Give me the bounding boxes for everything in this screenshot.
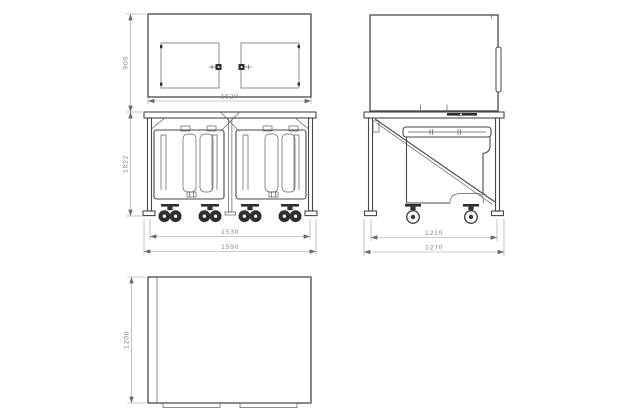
front-caster-1 (159, 204, 182, 222)
side-foot-right (492, 211, 504, 216)
technical-drawing: 900 1022 1520 1530 1590 (0, 0, 640, 420)
side-table-details (421, 105, 478, 116)
side-dim-caster-span: 1210 (371, 219, 497, 241)
front-door-right-latch-icon (239, 64, 252, 70)
drawing-canvas: 900 1022 1520 1530 1590 (0, 0, 640, 420)
plan-tab-right (240, 403, 297, 408)
front-center-post (225, 118, 236, 215)
plan-dim-depth: 1200 (123, 277, 147, 403)
side-caster-front (405, 204, 421, 223)
front-braces (152, 113, 309, 132)
side-foot-left (365, 211, 377, 216)
front-door-left-latch-icon (209, 64, 222, 70)
front-dim-frame-height-label: 1022 (122, 155, 130, 173)
front-leg-left (148, 118, 152, 211)
front-caster-3 (239, 204, 262, 222)
front-dim-overall-width: 1590 (144, 219, 316, 255)
side-view: 1210 1270 (364, 15, 504, 256)
front-bin-left (154, 126, 224, 199)
front-dim-frame-height: 1022 (122, 112, 143, 216)
front-bin-right (236, 126, 306, 199)
front-caster-2 (199, 204, 222, 222)
front-dim-overall-width-label: 1590 (221, 243, 239, 251)
front-leg-right (309, 118, 313, 211)
side-leg-left (369, 118, 373, 211)
front-door-right (241, 43, 299, 88)
front-dim-caster-span: 1530 (150, 219, 310, 240)
side-leg-right (496, 118, 500, 211)
front-door-left (161, 43, 219, 88)
side-dim-overall-depth-label: 1270 (425, 244, 443, 252)
plan-dim-depth-label: 1200 (123, 331, 131, 349)
front-foot-left (143, 211, 155, 216)
side-bracket (373, 121, 379, 132)
front-dim-body-width: 1520 (148, 93, 311, 105)
plan-tab-left (163, 403, 220, 408)
front-table-top (144, 112, 316, 118)
front-view: 900 1022 1520 1530 1590 (122, 14, 318, 255)
front-dim-caster-span-label: 1530 (221, 228, 239, 236)
front-upper-cabinet (148, 14, 311, 97)
front-foot-right (305, 211, 317, 216)
front-dim-upper-height: 900 (122, 14, 147, 112)
side-caster-rear (463, 204, 479, 223)
side-upper-cabinet (370, 15, 498, 111)
front-dim-upper-height-label: 900 (122, 56, 130, 70)
front-door-hinge-marks (160, 45, 300, 86)
plan-outline (148, 277, 311, 403)
plan-view: 1200 (123, 277, 312, 408)
side-dim-caster-span-label: 1210 (425, 229, 443, 237)
front-caster-4 (279, 204, 302, 222)
side-bin (403, 127, 491, 203)
side-handle (496, 47, 501, 92)
side-table-top (364, 112, 504, 118)
front-dim-body-width-label: 1520 (220, 93, 238, 101)
